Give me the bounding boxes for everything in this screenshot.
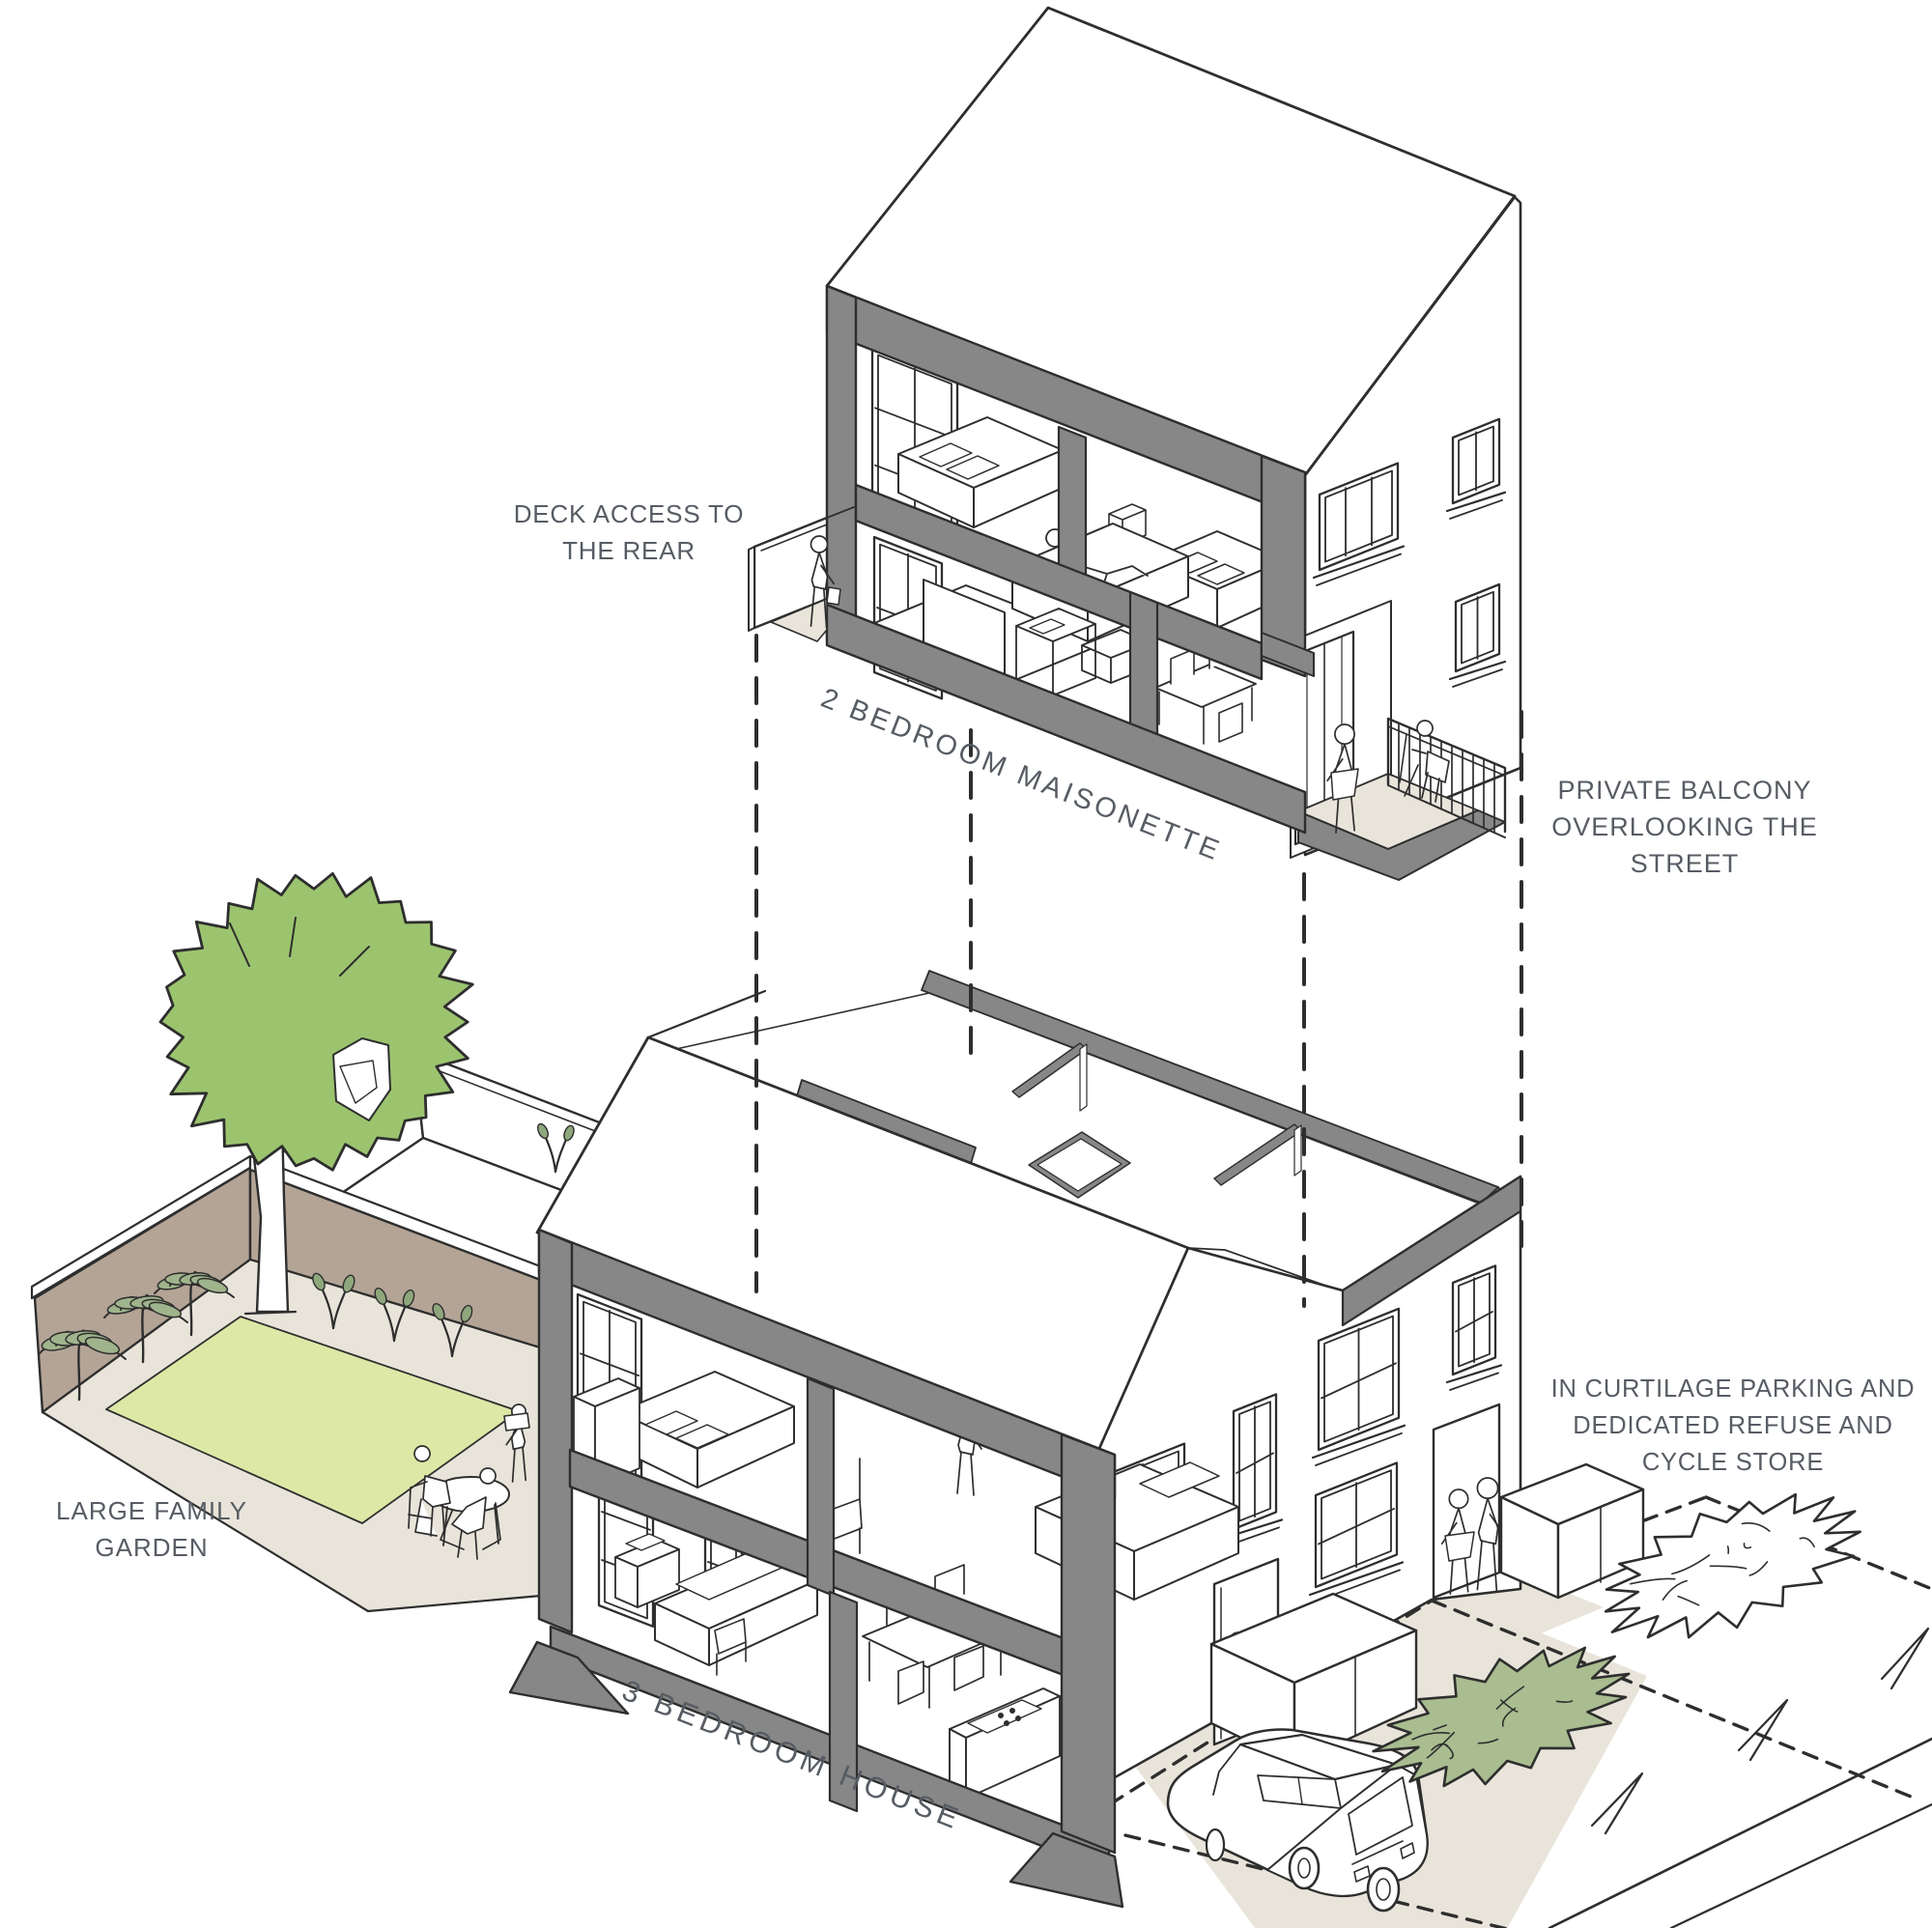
svg-text:DECK ACCESS TO: DECK ACCESS TO bbox=[514, 499, 745, 528]
svg-text:STREET: STREET bbox=[1631, 849, 1740, 878]
svg-text:PRIVATE BALCONY: PRIVATE BALCONY bbox=[1557, 776, 1811, 805]
svg-text:IN CURTILAGE PARKING AND: IN CURTILAGE PARKING AND bbox=[1551, 1375, 1916, 1403]
svg-text:DEDICATED REFUSE AND: DEDICATED REFUSE AND bbox=[1573, 1412, 1893, 1439]
svg-text:OVERLOOKING THE: OVERLOOKING THE bbox=[1551, 812, 1818, 841]
svg-text:CYCLE STORE: CYCLE STORE bbox=[1642, 1449, 1824, 1476]
svg-text:THE REAR: THE REAR bbox=[562, 536, 696, 565]
svg-text:GARDEN: GARDEN bbox=[95, 1533, 208, 1562]
svg-text:LARGE FAMILY: LARGE FAMILY bbox=[56, 1496, 247, 1525]
